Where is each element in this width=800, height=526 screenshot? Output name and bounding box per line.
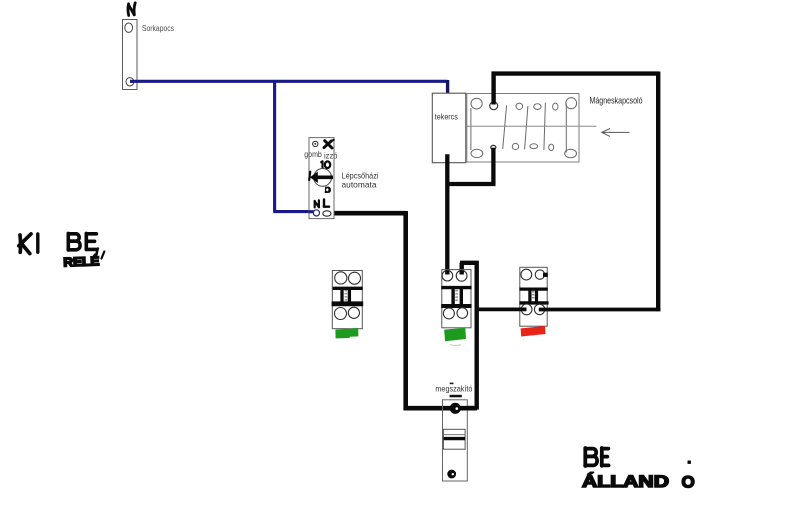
svg-text:gomb: gomb	[304, 150, 322, 159]
svg-text:ÁLLAND: ÁLLAND	[582, 472, 669, 491]
svg-text:RELÉ: RELÉ	[63, 253, 100, 269]
svg-text:tekercs: tekercs	[435, 112, 458, 122]
svg-text:automata: automata	[342, 180, 377, 190]
svg-text:Mágneskapcsoló: Mágneskapcsoló	[590, 96, 643, 107]
svg-text:izzó: izzó	[324, 152, 338, 161]
svg-text:O: O	[682, 473, 695, 492]
svg-text:Sorkapocs: Sorkapocs	[142, 24, 174, 33]
svg-text:megszakító: megszakító	[435, 385, 472, 394]
